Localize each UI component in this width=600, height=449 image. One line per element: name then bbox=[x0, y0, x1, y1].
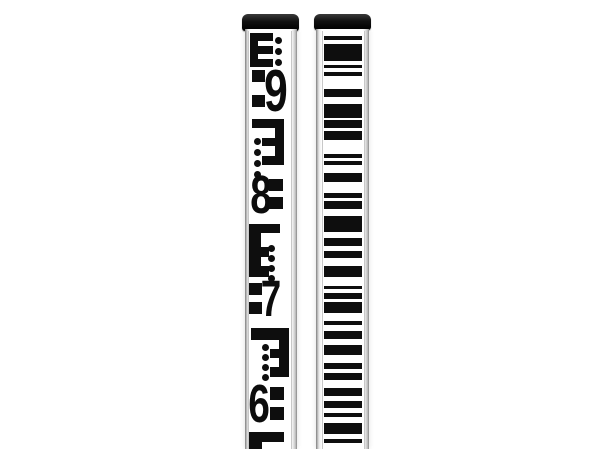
cm-dot-mark bbox=[275, 48, 282, 55]
right-staff-body bbox=[316, 29, 369, 449]
e-graduation-mark bbox=[252, 70, 265, 82]
photo-scene: 9876 bbox=[0, 0, 600, 449]
barcode-bar bbox=[324, 251, 362, 258]
barcode-bar bbox=[324, 120, 362, 128]
barcode-bar bbox=[324, 36, 362, 40]
cm-dot-mark bbox=[268, 255, 275, 262]
e-graduation-mark bbox=[270, 367, 289, 377]
barcode-bar bbox=[324, 104, 362, 118]
cm-dot-mark bbox=[262, 364, 269, 371]
e-graduation-mark bbox=[262, 138, 284, 146]
barcode-bar bbox=[324, 193, 362, 198]
e-graduation-mark bbox=[249, 432, 262, 449]
decimeter-digit: 6 bbox=[252, 383, 266, 425]
barcode-bar bbox=[324, 388, 362, 396]
barcode-bar bbox=[324, 238, 362, 246]
e-graduation-mark bbox=[250, 46, 273, 54]
decimeter-digit: 9 bbox=[268, 68, 284, 114]
e-graduation-mark bbox=[252, 95, 265, 107]
e-graduation-mark bbox=[262, 156, 284, 165]
barcode-bar bbox=[324, 286, 362, 289]
decimeter-digit: 8 bbox=[254, 174, 268, 216]
barcode-bar bbox=[324, 293, 362, 299]
barcode-bar bbox=[324, 413, 362, 417]
barcode-bar bbox=[324, 439, 362, 443]
barcode-bar bbox=[324, 266, 362, 277]
barcode-bar bbox=[324, 373, 362, 380]
barcode-bar bbox=[324, 331, 362, 339]
left-staff-body: 9876 bbox=[245, 29, 297, 449]
e-graduation-mark bbox=[249, 302, 262, 314]
barcode-bar bbox=[324, 345, 362, 355]
barcode-bar bbox=[324, 201, 362, 209]
e-face-scale: 9876 bbox=[248, 31, 292, 449]
e-graduation-mark bbox=[250, 33, 273, 41]
barcode-bar bbox=[324, 216, 362, 232]
barcode-bar bbox=[324, 44, 362, 61]
barcode-bar bbox=[324, 321, 362, 325]
barcode-bar bbox=[324, 161, 362, 165]
cm-dot-mark bbox=[268, 245, 275, 252]
barcode-bar bbox=[324, 65, 362, 68]
e-graduation-mark bbox=[249, 283, 262, 295]
barcode-bar bbox=[324, 154, 362, 158]
barcode-bar bbox=[324, 363, 362, 369]
cm-dot-mark bbox=[254, 149, 261, 156]
barcode-bar bbox=[324, 173, 362, 182]
cm-dot-mark bbox=[262, 344, 269, 351]
barcode-bar bbox=[324, 89, 362, 97]
barcode-scale bbox=[322, 31, 365, 449]
e-graduation-mark bbox=[270, 387, 284, 400]
e-graduation-mark bbox=[270, 349, 289, 358]
e-graduation-mark bbox=[269, 179, 283, 191]
e-graduation-mark bbox=[269, 197, 283, 209]
barcode-bar bbox=[324, 423, 362, 434]
cm-dot-mark bbox=[262, 354, 269, 361]
e-graduation-mark bbox=[249, 247, 269, 257]
right-staff-cap bbox=[314, 14, 371, 30]
decimeter-digit: 7 bbox=[265, 279, 278, 319]
cm-dot-mark bbox=[275, 37, 282, 44]
barcode-bar bbox=[324, 72, 362, 76]
barcode-bar bbox=[324, 302, 362, 313]
barcode-bar bbox=[324, 401, 362, 408]
e-graduation-mark bbox=[270, 407, 284, 420]
barcode-bar bbox=[324, 131, 362, 140]
cm-dot-mark bbox=[254, 138, 261, 145]
